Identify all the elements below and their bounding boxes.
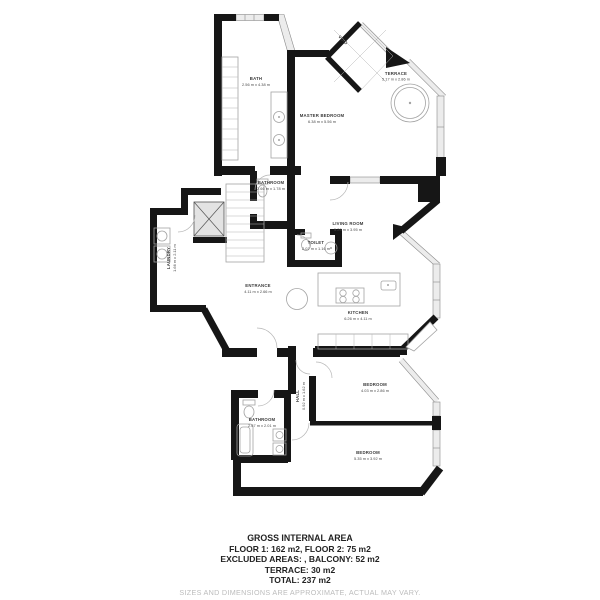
svg-text:BEDROOM: BEDROOM [356, 450, 380, 455]
svg-text:BATHROOM: BATHROOM [258, 180, 285, 185]
svg-text:TOILET: TOILET [308, 240, 325, 245]
area-summary-disclaimer: SIZES AND DIMENSIONS ARE APPROXIMATE, AC… [0, 588, 600, 597]
svg-text:2.07 m x 1.16 m: 2.07 m x 1.16 m [302, 246, 330, 251]
svg-text:4.11 m x 2.66 m: 4.11 m x 2.66 m [244, 289, 272, 294]
bathtub-icon [237, 424, 253, 456]
area-summary: GROSS INTERNAL AREA FLOOR 1: 162 m2, FLO… [0, 533, 600, 597]
svg-text:BATH: BATH [250, 76, 262, 81]
floor-plan-drawing: BATH 2.56 m x 4.38 m MASTER BEDROOM 6.38… [0, 0, 600, 600]
lower-bathroom-fixtures [237, 400, 286, 456]
svg-text:KITCHEN: KITCHEN [348, 310, 369, 315]
svg-text:5.26 m x 3.95 m: 5.26 m x 3.95 m [334, 227, 362, 232]
room-label-toilet: TOILET 2.07 m x 1.16 m [302, 240, 330, 251]
area-summary-floors: FLOOR 1: 162 m2, FLOOR 2: 75 m2 [0, 544, 600, 555]
room-label-hall: HALL 0.92 m x 1.62 m [295, 382, 306, 410]
svg-text:HALL: HALL [295, 390, 300, 402]
svg-text:2.66 m x 1.78 m: 2.66 m x 1.78 m [257, 186, 285, 191]
room-label-master-bedroom: MASTER BEDROOM 6.38 m x 5.56 m [300, 113, 345, 124]
area-summary-excluded: EXCLUDED AREAS: , BALCONY: 52 m2 [0, 554, 600, 565]
svg-text:1.66 m x 2.11 m: 1.66 m x 2.11 m [172, 244, 177, 272]
svg-text:6.38 m x 5.56 m: 6.38 m x 5.56 m [308, 119, 336, 124]
double-vanity [271, 92, 287, 158]
room-label-bath: BATH 2.56 m x 4.38 m [242, 76, 270, 87]
toilet-icon [243, 400, 255, 405]
room-label-terrace: TERRACE 5.17 m x 2.86 m [382, 71, 410, 82]
svg-text:LAUNDRY: LAUNDRY [166, 247, 171, 269]
corner-wedge [386, 47, 410, 68]
room-label-laundry: LAUNDRY 1.66 m x 2.11 m [166, 244, 177, 272]
bath-shelving [222, 57, 238, 160]
room-label-living-room: LIVING ROOM 5.26 m x 3.95 m [332, 221, 363, 232]
svg-text:6.26 m x 4.11 m: 6.26 m x 4.11 m [344, 316, 372, 321]
svg-text:ENTRANCE: ENTRANCE [245, 283, 270, 288]
svg-text:2.56 m x 4.38 m: 2.56 m x 4.38 m [242, 82, 270, 87]
area-summary-terrace: TERRACE: 30 m2 [0, 565, 600, 576]
svg-text:4.03 m x 2.86 m: 4.03 m x 2.86 m [361, 388, 389, 393]
svg-text:5.35 m x 3.92 m: 5.35 m x 3.92 m [354, 456, 382, 461]
area-summary-total: TOTAL: 237 m2 [0, 575, 600, 586]
elevator-icon [194, 202, 224, 236]
room-label-bathroom-upper: BATHROOM 2.66 m x 1.78 m [257, 180, 285, 191]
svg-text:MASTER BEDROOM: MASTER BEDROOM [300, 113, 345, 118]
room-label-bathroom-lower: BATHROOM 2.67 m x 2.01 m [248, 417, 276, 428]
area-summary-title: GROSS INTERNAL AREA [0, 533, 600, 544]
kitchen-island [318, 273, 400, 306]
floor-plan-page: BATH 2.56 m x 4.38 m MASTER BEDROOM 6.38… [0, 0, 600, 600]
room-label-kitchen: KITCHEN 6.26 m x 4.11 m [344, 310, 372, 321]
svg-text:BEDROOM: BEDROOM [363, 382, 387, 387]
room-label-bedroom-east: BEDROOM 4.03 m x 2.86 m [361, 382, 389, 393]
svg-text:0.92 m x 1.62 m: 0.92 m x 1.62 m [301, 382, 306, 410]
svg-text:2.67 m x 2.01 m: 2.67 m x 2.01 m [248, 423, 276, 428]
entrance-table [287, 289, 308, 310]
room-label-bedroom-south: BEDROOM 5.35 m x 3.92 m [354, 450, 382, 461]
round-tub [391, 84, 429, 122]
svg-text:BATHROOM: BATHROOM [249, 417, 276, 422]
svg-text:5.17 m x 2.86 m: 5.17 m x 2.86 m [382, 77, 410, 82]
svg-text:LIVING ROOM: LIVING ROOM [332, 221, 363, 226]
room-label-entrance: ENTRANCE 4.11 m x 2.66 m [244, 283, 272, 294]
svg-text:TERRACE: TERRACE [385, 71, 407, 76]
